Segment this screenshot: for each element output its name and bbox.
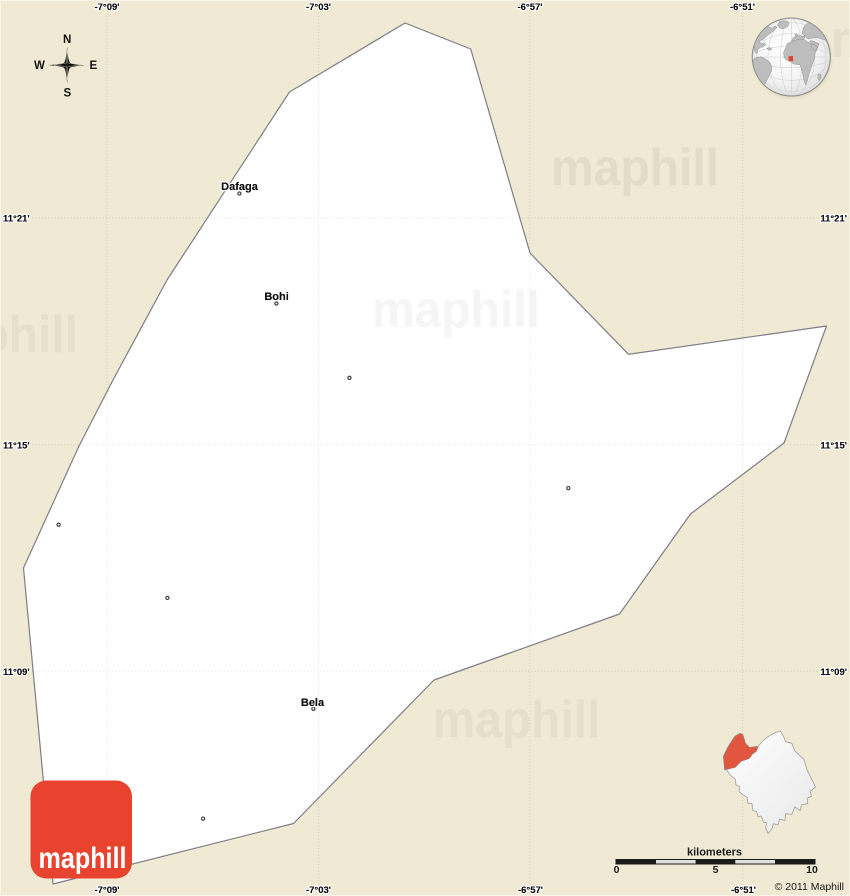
svg-text:-7°03': -7°03'	[306, 2, 331, 13]
svg-text:11°09': 11°09'	[820, 667, 847, 678]
svg-text:N: N	[63, 34, 71, 46]
svg-text:-7°09': -7°09'	[94, 885, 119, 896]
svg-text:maphill: maphill	[0, 306, 78, 364]
svg-text:11°15': 11°15'	[820, 440, 847, 451]
svg-text:maphill: maphill	[551, 139, 719, 197]
svg-text:0: 0	[614, 864, 620, 876]
svg-text:maphill: maphill	[39, 842, 127, 875]
svg-text:11°09': 11°09'	[3, 667, 30, 678]
svg-text:maphill: maphill	[433, 691, 601, 749]
svg-text:kilometers: kilometers	[687, 847, 742, 859]
svg-text:maphill: maphill	[372, 281, 540, 339]
svg-text:Bela: Bela	[301, 697, 325, 709]
svg-text:11°21': 11°21'	[820, 214, 847, 225]
svg-text:Dafaga: Dafaga	[221, 181, 259, 193]
svg-text:11°15': 11°15'	[3, 440, 30, 451]
svg-text:Bohi: Bohi	[264, 291, 288, 303]
svg-text:-6°51': -6°51'	[731, 885, 756, 896]
svg-text:11°21': 11°21'	[3, 214, 30, 225]
svg-text:W: W	[34, 60, 45, 72]
svg-text:-6°51': -6°51'	[730, 2, 755, 13]
svg-text:-6°57': -6°57'	[517, 2, 542, 13]
svg-text:10: 10	[806, 864, 818, 876]
svg-text:S: S	[63, 87, 71, 99]
svg-text:maphill: maphill	[831, 11, 850, 69]
svg-text:-6°57': -6°57'	[518, 885, 543, 896]
svg-text:5: 5	[713, 864, 719, 876]
svg-text:-7°09': -7°09'	[94, 2, 119, 13]
svg-text:E: E	[89, 60, 97, 72]
svg-text:-7°03': -7°03'	[306, 885, 331, 896]
svg-text:© 2011 Maphill: © 2011 Maphill	[775, 881, 844, 893]
